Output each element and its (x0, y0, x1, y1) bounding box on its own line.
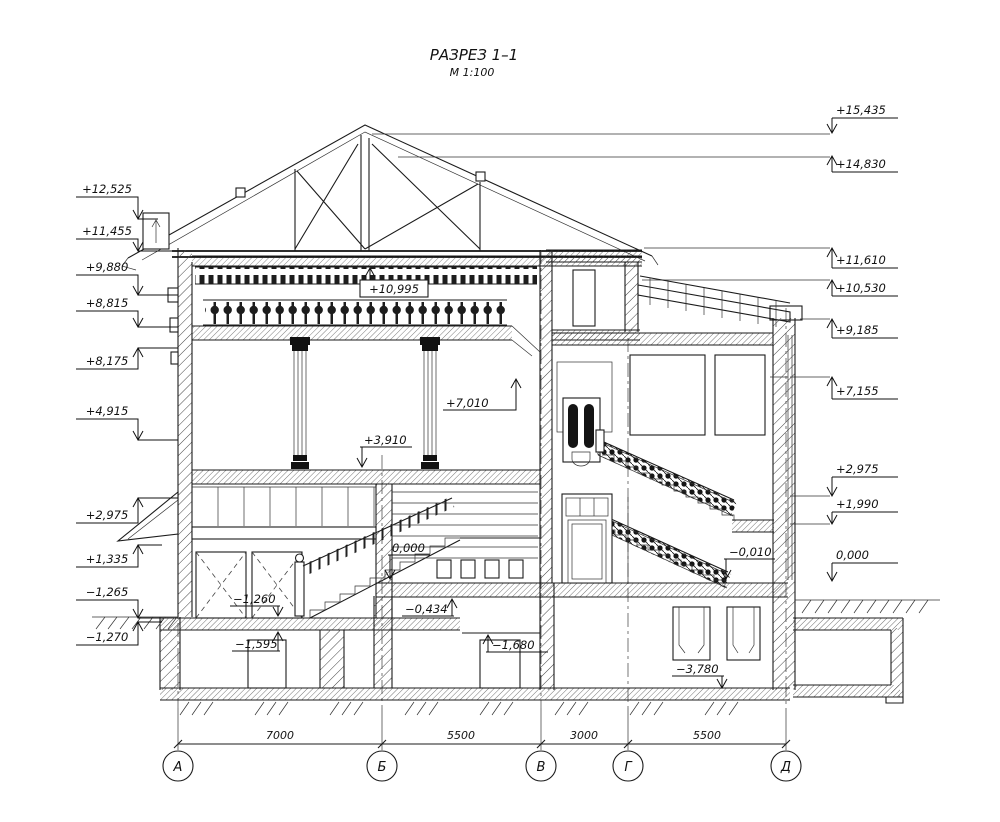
elevation-mark: −1,595 (232, 632, 283, 651)
elevation-mark: −0,010 (721, 545, 775, 579)
elevation-mark: +1,990 (827, 497, 898, 524)
axis-bubble: А (163, 751, 193, 781)
elevation-label: +8,175 (86, 354, 129, 368)
elevation-label: 0,000 (836, 548, 869, 562)
elevation-label: −1,680 (492, 638, 535, 652)
elevation-label: +3,910 (364, 433, 407, 447)
axis-label: А (173, 760, 183, 775)
elevation-mark: +14,830 (827, 156, 898, 172)
axis-bubble: Б (367, 751, 397, 781)
dim-value: 5500 (447, 729, 475, 742)
elevation-label: +9,880 (86, 260, 129, 274)
elevation-label: −1,260 (233, 592, 276, 606)
tower-window (573, 270, 595, 326)
axis-bubbles: А Б В Г Д (163, 751, 801, 781)
axis-label: Д (780, 760, 791, 775)
elevation-mark: +4,915 (76, 404, 178, 440)
axis-label: Б (378, 760, 387, 775)
wall-panel (715, 355, 765, 435)
roof-railing (650, 278, 776, 327)
elevation-label: −1,270 (86, 630, 129, 644)
drawing-scale: М 1:100 (450, 66, 495, 79)
dim-value: 7000 (266, 729, 294, 742)
elevation-mark: +8,175 (76, 348, 178, 369)
elevation-label: −1,265 (86, 585, 129, 599)
axis-bubble: Г (613, 751, 643, 781)
axis-bubble: В (526, 751, 556, 781)
ground-floor-mid (392, 492, 538, 578)
elevation-label: +11,610 (836, 253, 886, 267)
elevation-label: +10,995 (369, 282, 419, 296)
elevation-label: +7,010 (446, 396, 489, 410)
elevation-label: 0,000 (392, 541, 425, 555)
basement-doorway (673, 607, 710, 660)
elevation-mark: −3,780 (672, 662, 727, 688)
elevation-label: +12,525 (82, 182, 132, 196)
elevation-mark: −1,270 (76, 622, 162, 645)
underground-chamber (793, 600, 940, 703)
elevation-label: −0,434 (405, 602, 448, 616)
elevation-label: +14,830 (836, 157, 886, 171)
door-with-transom (562, 494, 612, 583)
elevation-mark: +1,335 (76, 545, 162, 567)
drawing-title: РАЗРЕЗ 1–1 (430, 46, 518, 64)
title-block: РАЗРЕЗ 1–1 М 1:100 (430, 46, 518, 79)
elevation-label: +9,185 (836, 323, 879, 337)
elevation-label: +1,335 (86, 552, 129, 566)
elevation-mark: +7,010 (443, 379, 521, 410)
elevation-mark: −1,680 (483, 635, 548, 652)
elevation-mark: 0,000 (827, 548, 898, 581)
elevation-mark: −0,434 (402, 599, 457, 616)
elevation-marks-right: +15,435 +14,830 +11,610 +10,530 +9,185 +… (827, 103, 898, 581)
elevation-label: +11,455 (82, 224, 132, 238)
elevation-label: +10,530 (836, 281, 886, 295)
column-right (420, 337, 440, 469)
axis-label: В (537, 760, 546, 775)
dim-value: 3000 (570, 729, 598, 742)
elevation-mark: +15,435 (827, 103, 898, 133)
dimension-line: 7000 5500 3000 5500 (174, 708, 790, 750)
elevation-mark: +11,610 (827, 248, 898, 268)
elevation-mark: +10,530 (827, 280, 898, 296)
basement-doorway (727, 607, 760, 660)
elevation-label: +2,975 (836, 462, 879, 476)
ornate-door (563, 398, 600, 466)
elevation-mark: +9,880 (76, 260, 178, 295)
elevation-label: +4,915 (86, 404, 129, 418)
drawing-sheet: РАЗРЕЗ 1–1 М 1:100 (0, 0, 1000, 822)
elevation-mark: +3,910 (357, 433, 412, 467)
elevation-mark: −1,265 (76, 585, 162, 618)
section-drawing: РАЗРЕЗ 1–1 М 1:100 (0, 0, 1000, 822)
elevation-label: +15,435 (836, 103, 886, 117)
elevation-label: −3,780 (676, 662, 719, 676)
elevation-label: +2,975 (86, 508, 129, 522)
elevation-label: +8,815 (86, 296, 129, 310)
elevation-label: +7,155 (836, 384, 879, 398)
elevation-label: −0,010 (729, 545, 772, 559)
elevation-mark: +9,185 (827, 319, 898, 338)
wall-panel (630, 355, 705, 435)
dim-value: 5500 (693, 729, 721, 742)
elevation-mark: +2,975 (827, 462, 898, 496)
elevation-mark: +7,155 (827, 377, 898, 399)
right-staircase (596, 430, 774, 588)
ground-floor-left (160, 487, 540, 630)
column-left (290, 337, 310, 469)
low-roof (638, 285, 790, 322)
balcony-balustrade (205, 302, 505, 324)
elevation-marks-left: +12,525 +11,455 +9,880 +8,815 +8,175 +4,… (76, 182, 178, 645)
upper-floor-right (552, 333, 788, 466)
elevation-mark: +8,815 (76, 296, 178, 327)
axis-bubble: Д (771, 751, 801, 781)
elevation-label: +1,990 (836, 497, 879, 511)
elevation-label: −1,595 (235, 637, 278, 651)
